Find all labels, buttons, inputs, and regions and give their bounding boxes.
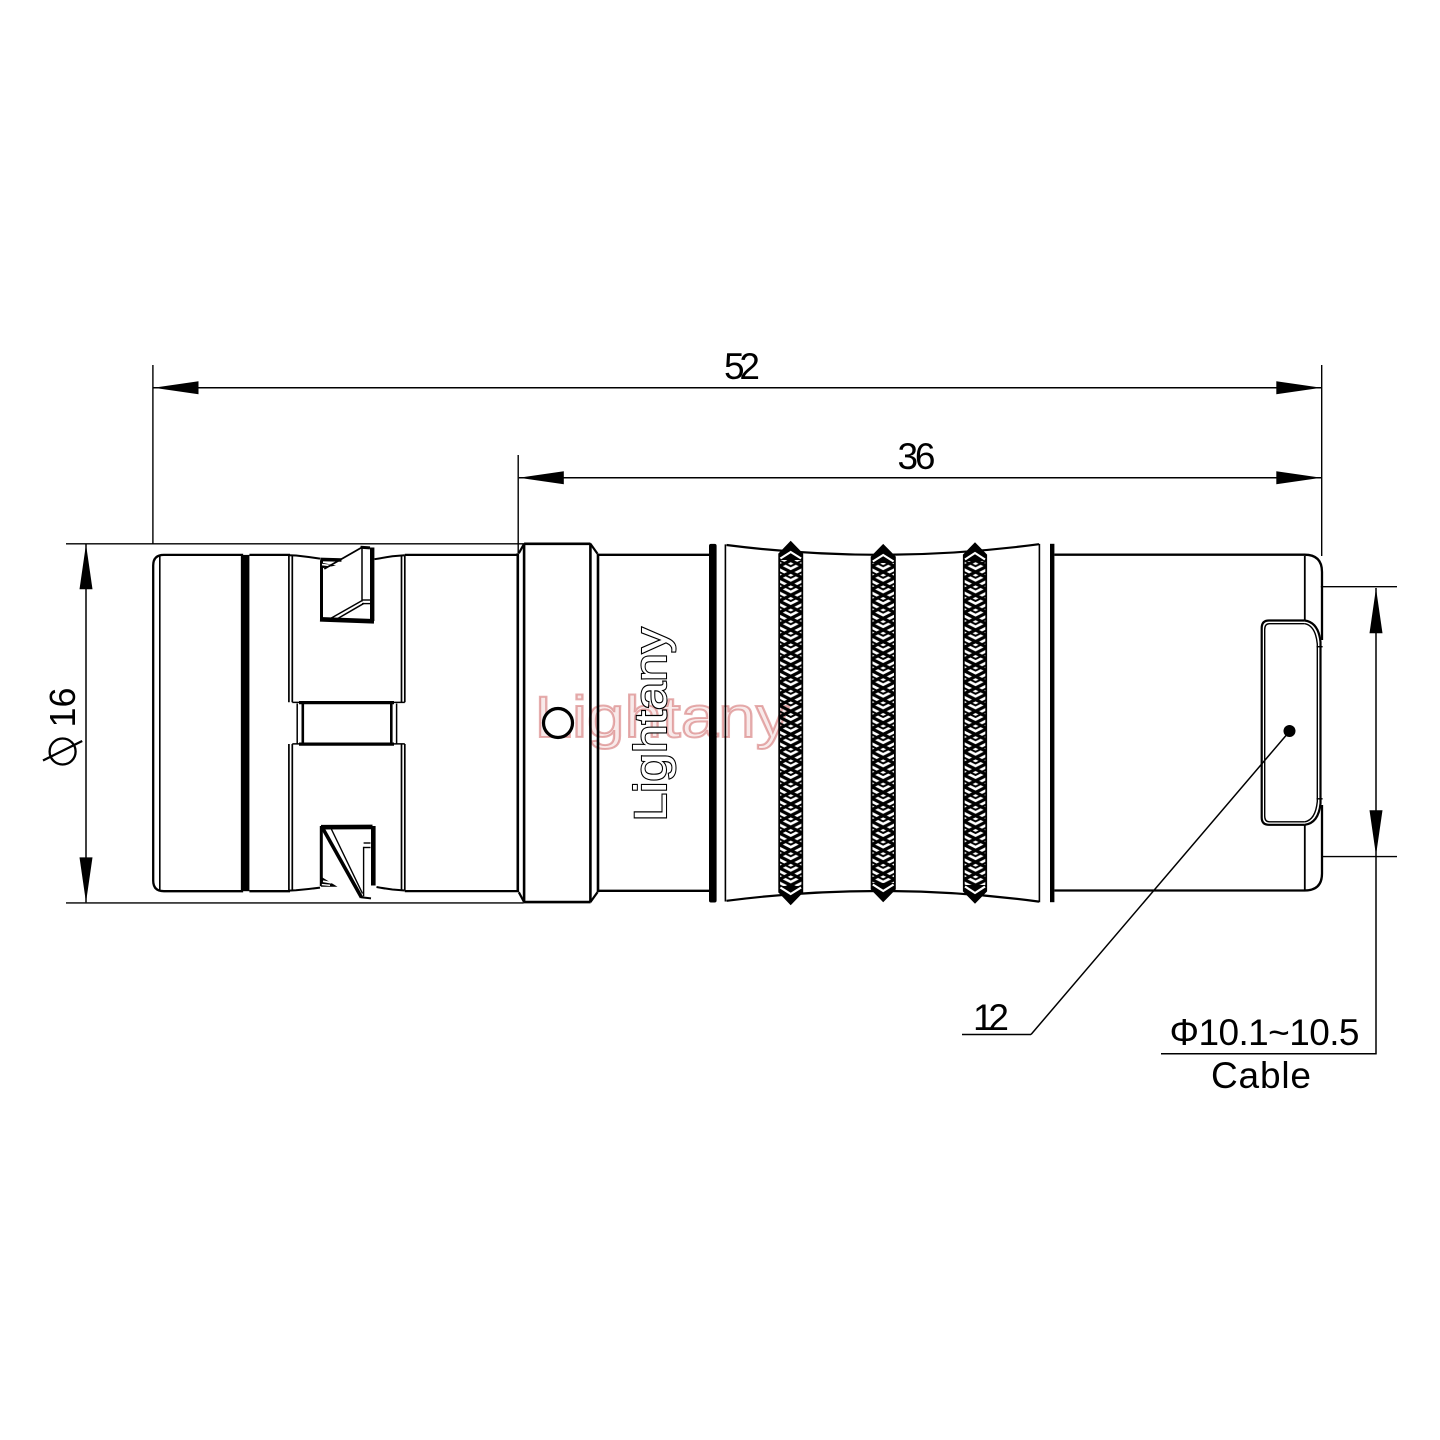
svg-text:36: 36 — [898, 436, 936, 477]
svg-text:16: 16 — [42, 687, 83, 727]
svg-text:12: 12 — [973, 997, 1009, 1038]
svg-text:Lightany: Lightany — [625, 627, 676, 822]
svg-text:Φ10.1~10.5: Φ10.1~10.5 — [1170, 1012, 1360, 1053]
svg-text:52: 52 — [724, 346, 760, 387]
svg-text:Cable: Cable — [1211, 1055, 1311, 1096]
